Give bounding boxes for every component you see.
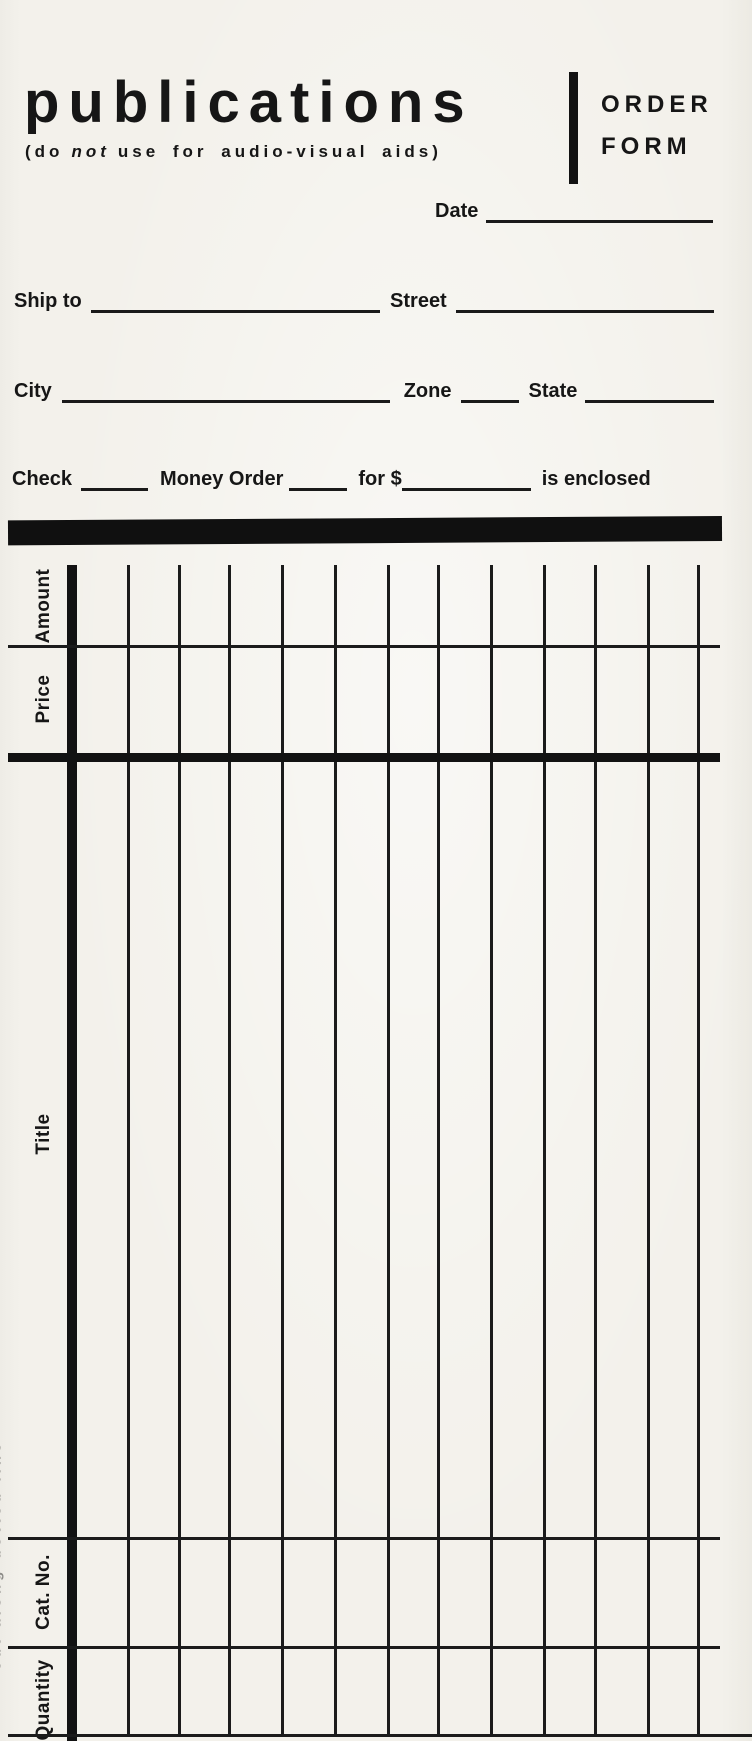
grid-row-line [594, 565, 597, 1737]
payment-row: Check Money Order for $ is enclosed [12, 466, 651, 491]
price-column-header: Price [33, 675, 55, 724]
ship-to-row: Ship to Street [14, 288, 714, 313]
zone-label: Zone [404, 380, 452, 403]
ship-to-label: Ship to [14, 290, 82, 313]
amount-column-header: Amount [33, 569, 55, 644]
grid-row-line [543, 565, 546, 1737]
subtitle: (donotuse for audio-visual aids) [25, 142, 442, 162]
title-divider-bar [569, 72, 578, 184]
subtitle-emphasis: not [71, 142, 109, 161]
is-enclosed-label: is enclosed [542, 468, 651, 491]
date-label: Date [435, 200, 478, 223]
city-input-line[interactable] [62, 378, 390, 403]
grid-row-line [697, 565, 700, 1737]
grid-row-line [647, 565, 650, 1737]
title-column-header: Title [33, 1113, 55, 1154]
table-header-rule [67, 565, 77, 1741]
subtitle-post: use for audio-visual aids) [118, 142, 442, 161]
amount-input-line[interactable] [402, 466, 531, 491]
date-input-line[interactable] [486, 198, 713, 223]
section-separator-bar [8, 516, 722, 545]
check-input-line[interactable] [81, 466, 148, 491]
price-title-divider [8, 753, 720, 762]
table-bottom-rule [8, 1734, 752, 1737]
subtitle-pre: (do [25, 142, 63, 161]
date-row: Date [435, 198, 713, 223]
title-catno-divider [8, 1537, 720, 1540]
money-order-label: Money Order [160, 468, 283, 491]
ship-to-input-line[interactable] [91, 288, 380, 313]
city-row: City Zone State [14, 378, 714, 403]
edge-note: cut along dotted line [0, 1440, 5, 1671]
order-form-heading-line1: ORDER [601, 84, 713, 126]
check-label: Check [12, 468, 72, 491]
grid-row-line [178, 565, 181, 1737]
cat-no-column-header: Cat. No. [33, 1554, 55, 1630]
state-label: State [529, 380, 578, 403]
state-input-line[interactable] [585, 378, 714, 403]
amount-price-divider [8, 645, 720, 648]
street-label: Street [390, 290, 447, 313]
catno-quantity-divider [8, 1646, 720, 1649]
grid-row-line [334, 565, 337, 1737]
street-input-line[interactable] [456, 288, 714, 313]
money-order-input-line[interactable] [289, 466, 347, 491]
order-form-heading: ORDER FORM [601, 84, 713, 168]
grid-row-line [437, 565, 440, 1737]
page-title: publications [24, 74, 474, 132]
grid-row-line [387, 565, 390, 1737]
quantity-column-header: Quantity [33, 1659, 55, 1740]
grid-row-line [127, 565, 130, 1737]
grid-row-line [281, 565, 284, 1737]
city-label: City [14, 380, 52, 403]
zone-input-line[interactable] [461, 378, 519, 403]
grid-row-line [228, 565, 231, 1737]
for-amount-label: for $ [358, 468, 401, 491]
grid-row-line [490, 565, 493, 1737]
order-form-heading-line2: FORM [601, 126, 713, 168]
order-form-page: publications ORDER FORM (donotuse for au… [0, 0, 752, 1741]
